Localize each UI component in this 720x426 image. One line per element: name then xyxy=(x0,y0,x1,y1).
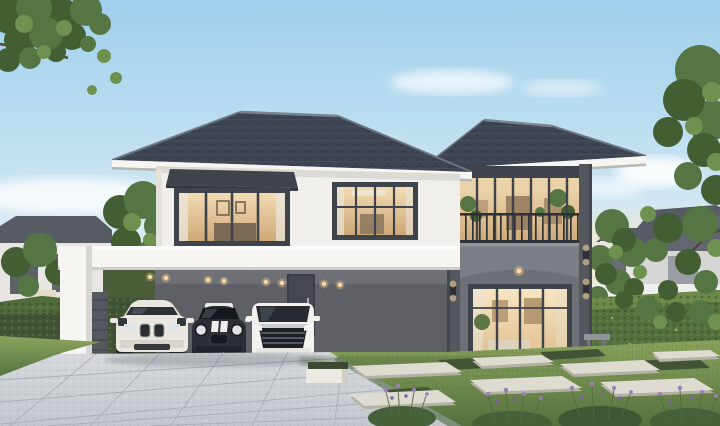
glass-balcony-wing xyxy=(447,164,610,373)
render-canvas xyxy=(0,0,720,426)
upper-middle-window xyxy=(332,182,418,240)
balcony-railing xyxy=(460,213,579,243)
planter-box xyxy=(306,362,348,383)
carport-view-trees xyxy=(103,268,155,302)
bay-window xyxy=(166,169,298,259)
carport-canopy xyxy=(58,246,460,270)
house-rendering xyxy=(0,0,720,426)
